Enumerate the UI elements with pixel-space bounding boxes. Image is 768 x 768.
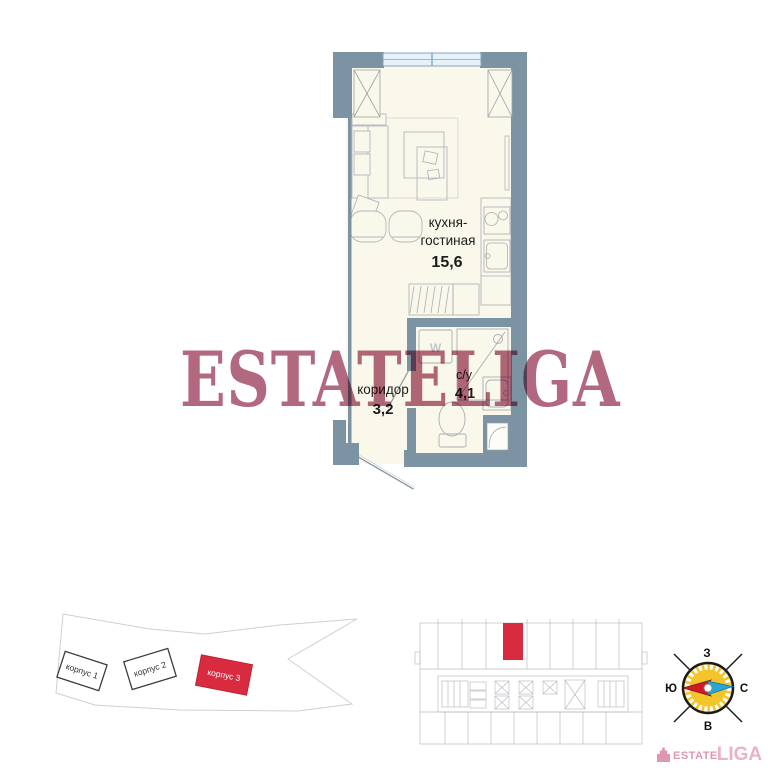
- compass-label-east: В: [704, 721, 712, 733]
- window: [383, 53, 481, 66]
- site-plan: корпус 1 корпус 2 корпус 3: [50, 605, 365, 720]
- floor-overview: [410, 614, 650, 754]
- bathroom-area: 4,1: [455, 386, 475, 402]
- estateliga-logo: ESTATE LIGA: [656, 737, 768, 763]
- floor-outline: [420, 623, 642, 744]
- highlighted-unit: [503, 623, 523, 660]
- bathroom-label: с/у: [456, 368, 473, 382]
- compass-label-north: С: [740, 683, 748, 695]
- kitchen-living-label-line1: кухня-: [429, 215, 468, 230]
- washer-label: W: [430, 341, 442, 355]
- bathroom-shaft-notch: [487, 423, 508, 450]
- apartment-floor-plan: W: [328, 46, 532, 496]
- logo-text-liga: LIGA: [717, 746, 762, 763]
- compass: З С В Ю: [655, 638, 760, 738]
- logo-text-estate: ESTATE: [673, 750, 718, 763]
- stairs-right: [598, 681, 624, 707]
- crown-icon: [656, 746, 671, 763]
- compass-label-west: З: [703, 648, 710, 660]
- kitchen-living-area: 15,6: [431, 254, 462, 271]
- kitchen-living-label-line2: гостиная: [421, 233, 476, 248]
- listing-image: W: [0, 0, 768, 768]
- corridor-label: коридор: [357, 382, 409, 397]
- compass-label-south: Ю: [665, 683, 677, 695]
- compass-hub: [704, 684, 712, 692]
- corridor-area: 3,2: [373, 401, 394, 418]
- stairs-left: [442, 681, 468, 707]
